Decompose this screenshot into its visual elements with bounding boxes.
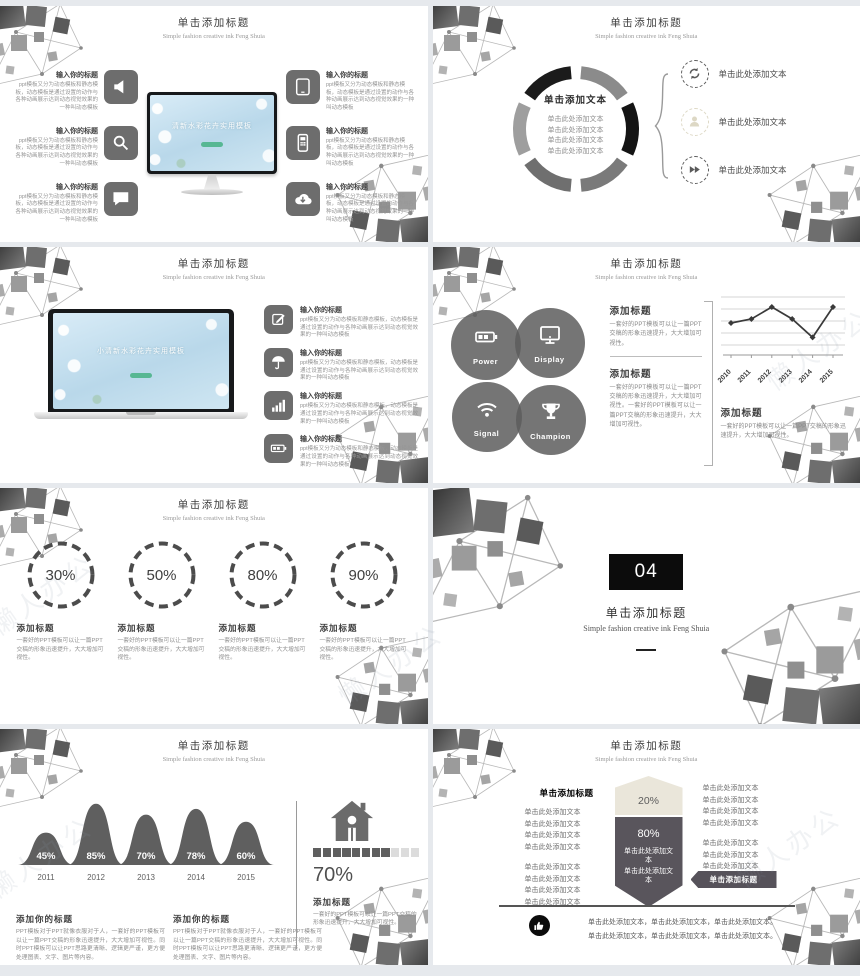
progress-square: [323, 848, 331, 857]
block-heading: 添加标题: [118, 622, 206, 634]
progress-square: [411, 848, 419, 857]
list-item: 输入你的标题 ppt模板又分为动态模板和静态模板，动态模板是通过设置的动作与各种…: [286, 126, 416, 169]
block-body: 一套好的PPT模板可以让一篇PPT交稿的形象迅速提升，大大增加可视性。: [313, 911, 419, 928]
wifi-icon: [475, 397, 499, 426]
footer-divider: [499, 905, 795, 907]
dashed-circle: 50%: [127, 540, 197, 610]
house-icon: [329, 799, 375, 841]
block-body: PPT模板对于PPT就像衣服对于人，一套好的PPT模板可以让一篇PPT交稿的形象…: [16, 928, 165, 963]
progress-percent: 70%: [313, 864, 419, 887]
slide-header: 单击添加标题 Simple fashion creative ink Feng …: [0, 738, 428, 763]
block-heading: 添加标题: [313, 896, 419, 908]
donut-line: 单击此处添加文本: [527, 147, 625, 158]
block-body: 一套好的PPT模板可以让一篇PPT交稿的形象迅速提升，大大增加可视性。: [219, 637, 307, 663]
slide-subtitle: Simple fashion creative ink Feng Shuia: [0, 274, 428, 281]
item-heading: 输入你的标题: [300, 305, 418, 315]
text-line: 单击此处添加文本: [525, 897, 609, 909]
donut-line: 单击此处添加文本: [527, 126, 625, 137]
slide-1-thumbnail[interactable]: 单击添加标题 Simple fashion creative ink Feng …: [0, 6, 428, 242]
text-block: 添加你的标题 PPT模板对于PPT就像衣服对于人，一套好的PPT模板可以让一篇P…: [173, 913, 322, 963]
battery-icon: [474, 325, 498, 354]
bell-curve-chart: 45%201185%201270%201378%201460%2015: [12, 787, 280, 887]
text-line: 单击此处添加文本: [703, 783, 789, 795]
venn-circle-champion: Champion: [516, 385, 586, 455]
item-body: ppt模板又分为动态模板和静态模板，动态模板是通过设置的动作与各种动画展示达到动…: [300, 317, 418, 340]
screen-title: 清新水彩花卉实用模板: [150, 121, 274, 131]
item-body: ppt模板又分为动态模板和静态模板，动态模板是通过设置的动作与各种动画展示达到动…: [326, 82, 416, 113]
item-body: ppt模板又分为动态模板和静态模板，动态模板是通过设置的动作与各种动画展示达到动…: [326, 194, 416, 225]
donut-line: 单击此处添加文本: [527, 115, 625, 126]
slide-header: 单击添加标题 Simple fashion creative ink Feng …: [433, 15, 860, 40]
slide-3-thumbnail[interactable]: 单击添加标题 Simple fashion creative ink Feng …: [0, 247, 428, 483]
donut-title: 单击添加文本: [527, 92, 625, 106]
chart-note: 添加标题 一套好的PPT模板可以让一篇PPT交稿的形象迅速提升，大大增加可视性。: [721, 405, 851, 442]
slide-title: 单击添加标题: [433, 256, 860, 271]
slide3-items: 输入你的标题 ppt模板又分为动态模板和静态模板，动态模板是通过设置的动作与各种…: [264, 305, 418, 469]
percent-circles: 30% 添加标题 一套好的PPT模板可以让一篇PPT交稿的形象迅速提升，大大增加…: [12, 540, 416, 663]
fast-forward-icon: [681, 156, 709, 184]
text-line: 单击此处添加文本: [703, 806, 789, 818]
list-item: 单击此处添加文本: [681, 60, 787, 87]
list-item: 输入你的标题 ppt模板又分为动态模板和静态模板，动态模板是通过设置的动作与各种…: [12, 182, 138, 225]
slide-title: 单击添加标题: [433, 15, 860, 30]
funnel-text-line: 单击此处添加文本: [622, 847, 676, 865]
circle-label: Power: [473, 357, 498, 366]
slide-header: 单击添加标题 Simple fashion creative ink Feng …: [0, 497, 428, 522]
item-body: ppt模板又分为动态模板和静态模板，动态模板是通过设置的动作与各种动画展示达到动…: [12, 82, 98, 113]
list-item: 输入你的标题 ppt模板又分为动态模板和静态模板，动态模板是通过设置的动作与各种…: [286, 70, 416, 113]
item-heading: 输入你的标题: [326, 182, 416, 192]
circle-label: Champion: [530, 432, 571, 441]
block-body: 一套好的PPT模板可以让一篇PPT交稿的形象迅速提升，大大增加可视性。: [610, 321, 702, 349]
text-line: 单击此处添加文本: [525, 874, 609, 886]
x-tick-label: 2013: [777, 369, 793, 385]
circle-label: Display: [534, 355, 564, 364]
funnel-top-segment: 20%: [615, 776, 683, 815]
slide-subtitle: Simple fashion creative ink Feng Shuia: [0, 756, 428, 763]
block-heading: 添加标题: [610, 303, 702, 317]
screen-button: [201, 142, 223, 147]
item-heading: 输入你的标题: [12, 126, 98, 136]
slide7-text-columns: 添加你的标题 PPT模板对于PPT就像衣服对于人，一套好的PPT模板可以让一篇P…: [16, 913, 322, 963]
monitor-base: [181, 189, 243, 195]
list-item: 单击此处添加文本: [681, 108, 787, 135]
slide-2-thumbnail[interactable]: 单击添加标题 Simple fashion creative ink Feng …: [433, 6, 860, 242]
x-tick-label: 2012: [757, 369, 773, 385]
slide-subtitle: Simple fashion creative ink Feng Shuia: [433, 33, 860, 40]
svg-text:2012: 2012: [87, 873, 105, 882]
svg-text:70%: 70%: [136, 851, 156, 862]
x-tick-label: 2014: [798, 369, 814, 385]
thumbs-up-icon: [529, 915, 550, 936]
svg-text:60%: 60%: [236, 851, 256, 862]
progress-square: [401, 848, 409, 857]
percent-value: 30%: [26, 540, 96, 610]
template-preview-page: 单击添加标题 Simple fashion creative ink Feng …: [0, 0, 860, 976]
text-line: 单击此处添加文本: [703, 838, 789, 850]
slide-title: 单击添加标题: [0, 497, 428, 512]
item-body: ppt模板又分为动态模板和静态模板，动态模板是通过设置的动作与各种动画展示达到动…: [326, 138, 416, 169]
text-line: 单击此处添加文本: [525, 885, 609, 897]
text-block: 添加标题 一套好的PPT模板可以让一篇PPT交稿的形象迅速提升，大大增加可视性。: [610, 303, 702, 349]
tablet-icon: [286, 70, 320, 104]
column-heading: 单击添加标题: [525, 787, 609, 799]
underline-dash: [636, 649, 656, 651]
slide1-right-items: 输入你的标题 ppt模板又分为动态模板和静态模板，动态模板是通过设置的动作与各种…: [286, 70, 416, 224]
slide-title: 单击添加标题: [0, 256, 428, 271]
progress-square: [391, 848, 399, 857]
item-heading: 输入你的标题: [300, 391, 418, 401]
item-label: 单击此处添加文本: [719, 164, 787, 176]
donut-line: 单击此处添加文本: [527, 136, 625, 147]
slide-6-thumbnail[interactable]: 04 单击添加标题 Simple fashion creative ink Fe…: [433, 488, 860, 724]
decor-squares-bottom-right: [716, 580, 860, 724]
percent-value: 80%: [228, 540, 298, 610]
item-heading: 输入你的标题: [300, 434, 418, 444]
dashed-circle: 90%: [329, 540, 399, 610]
speaker-icon: [104, 70, 138, 104]
donut-center-text: 单击添加文本 单击此处添加文本 单击此处添加文本 单击此处添加文本 单击此处添加…: [527, 92, 625, 157]
progress-squares: [313, 848, 419, 857]
item-label: 单击此处添加文本: [719, 68, 787, 80]
dashed-circle: 30%: [26, 540, 96, 610]
footer-text: 单击此处添加文本，单击此处添加文本，单击此处添加文本。 单击此处添加文本，单击此…: [567, 916, 799, 943]
percent-column: 50% 添加标题 一套好的PPT模板可以让一篇PPT交稿的形象迅速提升，大大增加…: [113, 540, 210, 663]
slide-8-thumbnail[interactable]: 单击添加标题 Simple fashion creative ink Feng …: [433, 729, 860, 965]
monitor-mockup: 清新水彩花卉实用模板: [147, 92, 277, 195]
trophy-icon: [539, 400, 563, 429]
text-line: 单击此处添加文本: [525, 830, 609, 842]
laptop-mockup: 小清新水彩花卉实用模板: [34, 309, 248, 419]
item-body: ppt模板又分为动态模板和静态模板，动态模板是通过设置的动作与各种动画展示达到动…: [300, 360, 418, 383]
mobile-icon: [286, 126, 320, 160]
slide-header: 单击添加标题 Simple fashion creative ink Feng …: [0, 15, 428, 40]
display-icon: [538, 323, 562, 352]
slide-subtitle: Simple fashion creative ink Feng Shuia: [0, 515, 428, 522]
percent-column: 30% 添加标题 一套好的PPT模板可以让一篇PPT交稿的形象迅速提升，大大增加…: [12, 540, 109, 663]
x-tick-label: 2015: [818, 369, 834, 385]
percent-value: 90%: [329, 540, 399, 610]
svg-text:2015: 2015: [237, 873, 255, 882]
progress-square: [313, 848, 321, 857]
item-heading: 输入你的标题: [326, 70, 416, 80]
slide1-left-items: 输入你的标题 ppt模板又分为动态模板和静态模板，动态模板是通过设置的动作与各种…: [12, 70, 138, 224]
block-heading: 添加标题: [610, 366, 702, 380]
text-line: 单击此处添加文本: [525, 842, 609, 854]
vertical-divider: [296, 801, 297, 949]
text-block: 添加你的标题 PPT模板对于PPT就像衣服对于人，一套好的PPT模板可以让一篇P…: [16, 913, 165, 963]
svg-text:2014: 2014: [187, 873, 205, 882]
progress-square: [333, 848, 341, 857]
venn-circles: Power Display Signal Champion: [451, 302, 601, 457]
venn-circle-power: Power: [451, 310, 521, 380]
screen-title: 小清新水彩花卉实用模板: [53, 346, 229, 356]
divider: [610, 356, 702, 357]
block-body: 一套好的PPT模板可以让一篇PPT交稿的形象迅速提升，大大增加可视性。: [320, 637, 408, 663]
section-title: 单击添加标题: [433, 604, 860, 621]
svg-text:85%: 85%: [86, 851, 106, 862]
svg-text:2013: 2013: [137, 873, 155, 882]
item-body: ppt模板又分为动态模板和静态模板，动态模板是通过设置的动作与各种动画展示达到动…: [300, 403, 418, 426]
svg-text:45%: 45%: [36, 851, 56, 862]
block-body: PPT模板对于PPT就像衣服对于人，一套好的PPT模板可以让一篇PPT交稿的形象…: [173, 928, 322, 963]
bracket-line: [704, 301, 713, 466]
text-line: 单击此处添加文本: [703, 818, 789, 830]
slide-subtitle: Simple fashion creative ink Feng Shuia: [433, 274, 860, 281]
progress-square: [342, 848, 350, 857]
item-heading: 输入你的标题: [12, 182, 98, 192]
slide-header: 单击添加标题 Simple fashion creative ink Feng …: [0, 256, 428, 281]
funnel-bottom-percent: 80%: [615, 828, 683, 840]
slide-subtitle: Simple fashion creative ink Feng Shuia: [433, 756, 860, 763]
item-label: 单击此处添加文本: [719, 116, 787, 128]
section-subtitle: Simple fashion creative ink Feng Shuia: [433, 624, 860, 633]
list-item: 输入你的标题 ppt模板又分为动态模板和静态模板，动态模板是通过设置的动作与各种…: [264, 391, 418, 426]
slide-title: 单击添加标题: [0, 738, 428, 753]
laptop-base: [34, 412, 248, 419]
footer-line: 单击此处添加文本，单击此处添加文本，单击此处添加文本。: [567, 916, 799, 930]
x-tick-label: 2011: [737, 369, 753, 385]
curly-brace: [654, 72, 670, 180]
block-heading: 添加标题: [320, 622, 408, 634]
list-item: 输入你的标题 ppt模板又分为动态模板和静态模板，动态模板是通过设置的动作与各种…: [264, 305, 418, 340]
block-heading: 添加标题: [17, 622, 105, 634]
text-block: 添加标题 一套好的PPT模板可以让一篇PPT交稿的形象迅速提升，大大增加可视性。…: [610, 366, 702, 430]
list-item: 输入你的标题 ppt模板又分为动态模板和静态模板，动态模板是通过设置的动作与各种…: [264, 348, 418, 383]
line-chart-x-labels: 201020112012201320142015: [721, 365, 845, 391]
bar-chart-icon: [264, 391, 293, 420]
venn-circle-display: Display: [515, 308, 585, 378]
slide4-text-blocks: 添加标题 一套好的PPT模板可以让一篇PPT交稿的形象迅速提升，大大增加可视性。…: [610, 303, 702, 430]
x-tick-label: 2010: [716, 369, 732, 385]
block-body: 一套好的PPT模板可以让一篇PPT交稿的形象迅速提升，大大增加可视性。一套好的P…: [610, 384, 702, 430]
chat-icon: [104, 182, 138, 216]
slide-header: 单击添加标题 Simple fashion creative ink Feng …: [433, 256, 860, 281]
arrow-banner: 单击添加标题: [691, 871, 777, 888]
footer-line: 单击此处添加文本，单击此处添加文本，单击此处添加文本。: [567, 930, 799, 944]
text-line: 单击此处添加文本: [703, 850, 789, 862]
percent-column: 90% 添加标题 一套好的PPT模板可以让一篇PPT交稿的形象迅速提升，大大增加…: [315, 540, 412, 663]
funnel-bottom-segment: 80% 单击此处添加文本 单击此处添加文本: [615, 817, 683, 907]
note-body: 一套好的PPT模板可以让一篇PPT交稿的形象迅速提升，大大增加可视性。: [721, 423, 851, 442]
slide-header: 单击添加标题 Simple fashion creative ink Feng …: [433, 738, 860, 763]
screen-button: [130, 373, 152, 378]
slide-title: 单击添加标题: [0, 15, 428, 30]
progress-square: [372, 848, 380, 857]
line-chart: [721, 295, 845, 361]
slide-5-thumbnail[interactable]: 单击添加标题 Simple fashion creative ink Feng …: [0, 488, 428, 724]
cloud-download-icon: [286, 182, 320, 216]
umbrella-icon: [264, 348, 293, 377]
note-heading: 添加标题: [721, 405, 851, 419]
block-body: 一套好的PPT模板可以让一篇PPT交稿的形象迅速提升，大大增加可视性。: [17, 637, 105, 663]
block-heading: 添加标题: [219, 622, 307, 634]
search-icon: [104, 126, 138, 160]
slide7-right-panel: 70% 添加标题 一套好的PPT模板可以让一篇PPT交稿的形象迅速提升，大大增加…: [313, 799, 419, 928]
list-item: 输入你的标题 ppt模板又分为动态模板和静态模板，动态模板是通过设置的动作与各种…: [12, 126, 138, 169]
block-heading: 添加你的标题: [16, 913, 165, 925]
percent-column: 80% 添加标题 一套好的PPT模板可以让一篇PPT交稿的形象迅速提升，大大增加…: [214, 540, 311, 663]
slide-subtitle: Simple fashion creative ink Feng Shuia: [0, 33, 428, 40]
laptop-screen: 小清新水彩花卉实用模板: [53, 313, 229, 409]
text-line: 单击此处添加文本: [525, 819, 609, 831]
block-heading: 添加你的标题: [173, 913, 322, 925]
list-item: 输入你的标题 ppt模板又分为动态模板和静态模板，动态模板是通过设置的动作与各种…: [264, 434, 418, 469]
text-line: 单击此处添加文本: [525, 862, 609, 874]
item-heading: 输入你的标题: [12, 70, 98, 80]
item-body: ppt模板又分为动态模板和静态模板，动态模板是通过设置的动作与各种动画展示达到动…: [12, 138, 98, 169]
monitor-stand: [204, 174, 220, 189]
circle-label: Signal: [474, 429, 500, 438]
progress-square: [362, 848, 370, 857]
slide-4-thumbnail[interactable]: 单击添加标题 Simple fashion creative ink Feng …: [433, 247, 860, 483]
progress-square: [381, 848, 389, 857]
block-body: 一套好的PPT模板可以让一篇PPT交稿的形象迅速提升，大大增加可视性。: [118, 637, 206, 663]
item-body: ppt模板又分为动态模板和静态模板，动态模板是通过设置的动作与各种动画展示达到动…: [300, 446, 418, 469]
slide-title: 单击添加标题: [433, 738, 860, 753]
edit-icon: [264, 305, 293, 334]
slide8-left-column: 单击添加标题 单击此处添加文本 单击此处添加文本 单击此处添加文本 单击此处添加…: [525, 787, 609, 908]
text-line: 单击此处添加文本: [703, 795, 789, 807]
monitor-screen: 清新水彩花卉实用模板: [150, 95, 274, 171]
funnel-top-percent: 20%: [638, 795, 659, 807]
text-lines: 单击此处添加文本 单击此处添加文本 单击此处添加文本 单击此处添加文本 单击此处…: [525, 807, 609, 908]
percent-value: 50%: [127, 540, 197, 610]
item-heading: 输入你的标题: [326, 126, 416, 136]
list-item: 输入你的标题 ppt模板又分为动态模板和静态模板，动态模板是通过设置的动作与各种…: [286, 182, 416, 225]
slide-7-thumbnail[interactable]: 单击添加标题 Simple fashion creative ink Feng …: [0, 729, 428, 965]
list-item: 输入你的标题 ppt模板又分为动态模板和静态模板，动态模板是通过设置的动作与各种…: [12, 70, 138, 113]
item-body: ppt模板又分为动态模板和静态模板，动态模板是通过设置的动作与各种动画展示达到动…: [12, 194, 98, 225]
dashed-circle: 80%: [228, 540, 298, 610]
svg-text:2011: 2011: [37, 873, 55, 882]
slide8-right-column: 单击此处添加文本 单击此处添加文本 单击此处添加文本 单击此处添加文本 单击此处…: [703, 783, 789, 884]
svg-text:78%: 78%: [186, 851, 206, 862]
progress-square: [352, 848, 360, 857]
battery-icon: [264, 434, 293, 463]
slide2-items: 单击此处添加文本 单击此处添加文本 单击此处添加文本: [681, 60, 787, 183]
funnel-text-line: 单击此处添加文本: [622, 867, 676, 885]
section-number: 04: [609, 554, 683, 590]
refresh-icon: [681, 60, 709, 88]
text-line: 单击此处添加文本: [525, 807, 609, 819]
item-heading: 输入你的标题: [300, 348, 418, 358]
venn-circle-signal: Signal: [452, 382, 522, 452]
user-icon: [681, 108, 709, 136]
list-item: 单击此处添加文本: [681, 156, 787, 183]
